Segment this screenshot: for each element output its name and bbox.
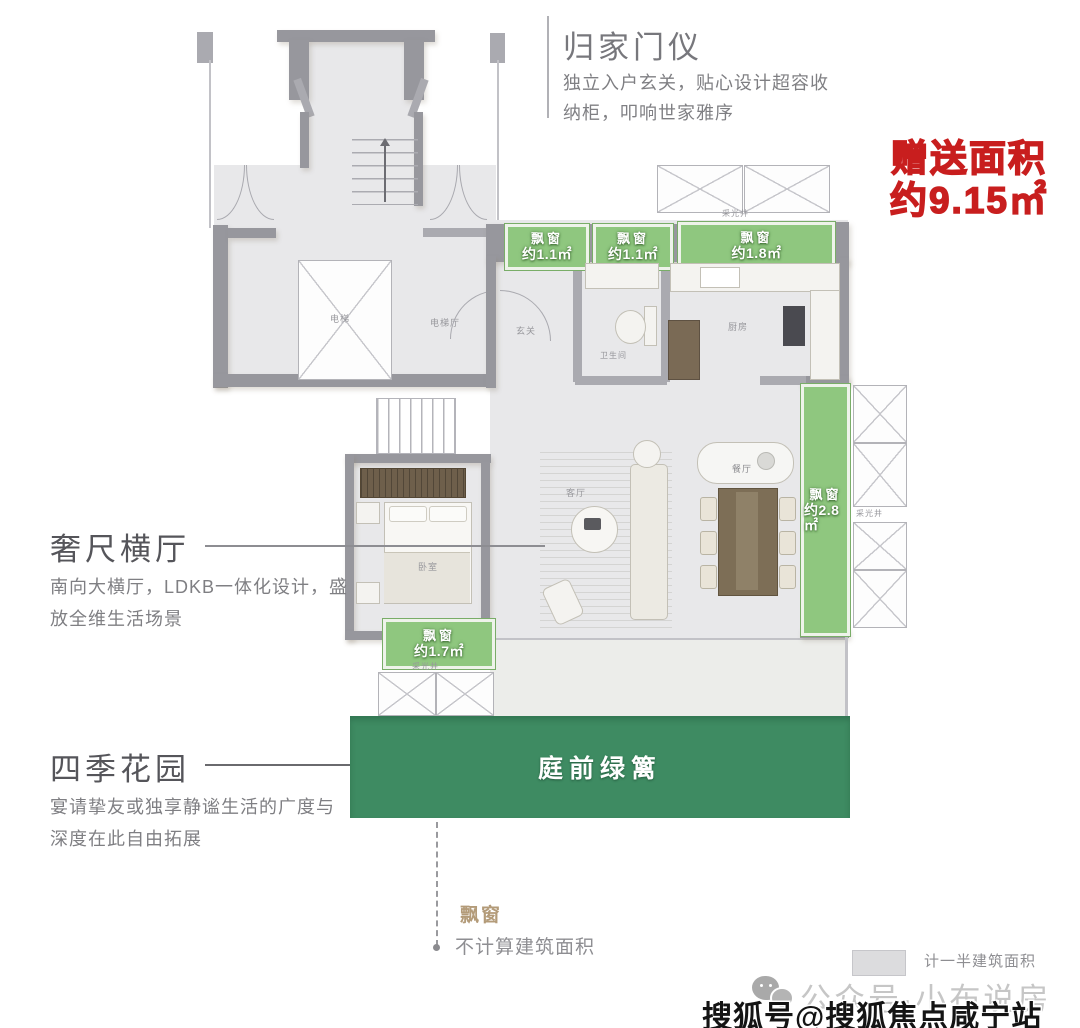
kitchen-counter-top	[670, 263, 840, 292]
entry-callout-line	[547, 16, 549, 118]
lightwell-bottom-box1	[378, 672, 436, 716]
floorplan-page: 电梯 电梯厅 飘窗 约1.1㎡ 飘窗 约1.1㎡ 飘窗 约1.8㎡ 飘窗 约2.…	[0, 0, 1080, 1028]
kitchen-stove	[783, 306, 805, 346]
toilet-bowl	[615, 310, 646, 344]
bay-window-1: 飘窗 约1.1㎡	[505, 224, 589, 270]
nightstand-2	[356, 582, 380, 604]
entry-callout-desc1: 独立入户玄关，贴心设计超容收	[563, 68, 829, 98]
wall-foyer-bath	[573, 260, 582, 382]
garden-callout-title: 四季花园	[50, 744, 190, 789]
dining-chair-4	[779, 497, 796, 521]
room-label-living: 客厅	[566, 486, 586, 499]
garden-callout-line	[205, 764, 350, 766]
legend-half-swatch	[852, 950, 906, 976]
legend-bay-dot	[433, 944, 440, 951]
kitchen-sink	[700, 267, 740, 288]
lightwell-right-box4	[853, 570, 907, 628]
bed-pillow-2	[429, 506, 467, 522]
bedroom-left-wall	[345, 454, 354, 640]
lightwell-right-box1	[853, 385, 907, 443]
room-label-bathroom: 卫生间	[600, 350, 627, 361]
bay-window-2-area: 约1.1㎡	[608, 247, 658, 262]
legend-bay-title: 飘窗	[460, 900, 502, 927]
dining-chair-5	[779, 531, 796, 555]
bay-window-4-area: 约2.8㎡	[804, 503, 847, 533]
hall-callout-desc1: 南向大横厅，LDKB一体化设计，盛	[50, 572, 348, 602]
kitchen-fridge	[668, 320, 700, 380]
watermark-sohu: 搜狐号@搜狐焦点咸宁站	[702, 992, 1042, 1028]
room-label-foyer: 玄关	[516, 324, 536, 337]
terrace-floor	[490, 640, 848, 718]
bay-window-1-name: 飘窗	[531, 232, 563, 246]
dining-runner	[736, 492, 758, 590]
wardrobe	[360, 468, 466, 498]
garden-callout-desc2: 深度在此自由拓展	[50, 824, 202, 854]
hedge-area: 庭前绿篱	[350, 716, 850, 818]
bay-window-3-name: 飘窗	[740, 231, 772, 245]
lightwell-top-box2	[744, 165, 830, 213]
terrace-right-edge	[845, 636, 848, 718]
wall-bath-bottom	[575, 376, 667, 385]
sofa	[630, 464, 668, 620]
boundary-block-left	[197, 32, 213, 63]
room-label-elevator: 电梯	[330, 312, 350, 325]
bay-window-4: 飘窗 约2.8㎡	[801, 384, 850, 636]
stairs-direction-line	[384, 142, 386, 202]
legend-bay-desc: 不计算建筑面积	[455, 932, 595, 959]
stairs-arrow-icon	[380, 138, 390, 146]
porch-left-wall	[300, 112, 309, 168]
bay-window-5: 飘窗 约1.7㎡	[383, 619, 495, 669]
bay-window-2-name: 飘窗	[617, 232, 649, 246]
wall-kitchen-bottom	[760, 376, 806, 385]
lightwell-right-box2	[853, 443, 907, 507]
hall-callout-desc2: 放全维生活场景	[50, 604, 183, 634]
terrace-edge	[490, 638, 848, 640]
legend-bay-leader	[436, 822, 438, 946]
lightwell-top-label: 采光井	[722, 208, 749, 219]
bonus-area-text: 赠送面积 约9.15㎡	[890, 138, 1048, 222]
lightwell-top-box1	[657, 165, 743, 213]
bonus-area-line2: 约9.15㎡	[890, 180, 1048, 222]
hedge-label: 庭前绿篱	[350, 716, 850, 818]
legend-half-label: 计一半建筑面积	[924, 950, 1036, 971]
unit-left-wall	[486, 256, 496, 388]
bedroom-top-wall	[345, 454, 491, 463]
entry-callout-desc2: 纳柜，叩响世家雅序	[563, 98, 734, 128]
lightwell-bottom-box2	[436, 672, 494, 716]
bay-window-3-area: 约1.8㎡	[732, 246, 782, 261]
hall-callout-title: 奢尺横厅	[50, 524, 190, 569]
room-label-bedroom: 卧室	[418, 560, 438, 573]
bay-window-5-area: 约1.7㎡	[414, 644, 464, 659]
unit-right-wall-kitchen	[839, 258, 849, 383]
island-sink	[757, 452, 775, 470]
bedroom-right-wall	[481, 462, 490, 640]
boundary-wall-right	[497, 60, 499, 228]
room-label-kitchen: 厨房	[728, 320, 748, 333]
lightwell-right-label: 采光井	[856, 508, 883, 519]
lightwell-bottom-label: 采光井	[412, 661, 439, 672]
dining-chair-2	[700, 531, 717, 555]
bonus-area-line1: 赠送面积	[890, 138, 1048, 180]
armchair	[633, 440, 661, 468]
unit-stairs	[376, 398, 456, 454]
nightstand-1	[356, 502, 380, 524]
bay-window-4-name: 飘窗	[809, 488, 841, 502]
bay-window-5-name: 飘窗	[423, 629, 455, 643]
boundary-block-right	[490, 33, 505, 63]
hall-top-stub	[228, 228, 276, 238]
hall-left-wall	[213, 225, 228, 388]
hall-callout-line	[205, 545, 545, 547]
bed-pillow-1	[389, 506, 427, 522]
kitchen-counter-right	[810, 290, 840, 380]
coffee-table-decor	[584, 518, 601, 530]
bay-window-1-area: 约1.1㎡	[522, 247, 572, 262]
lightwell-right-box3	[853, 522, 907, 570]
boundary-wall-left	[209, 60, 211, 228]
bathroom-vanity	[585, 263, 659, 289]
entry-callout-title: 归家门仪	[563, 22, 703, 67]
room-label-dining: 餐厅	[732, 462, 752, 475]
garden-callout-desc1: 宴请挚友或独享静谧生活的广度与	[50, 792, 335, 822]
dining-chair-6	[779, 565, 796, 589]
dining-chair-1	[700, 497, 717, 521]
dining-chair-3	[700, 565, 717, 589]
